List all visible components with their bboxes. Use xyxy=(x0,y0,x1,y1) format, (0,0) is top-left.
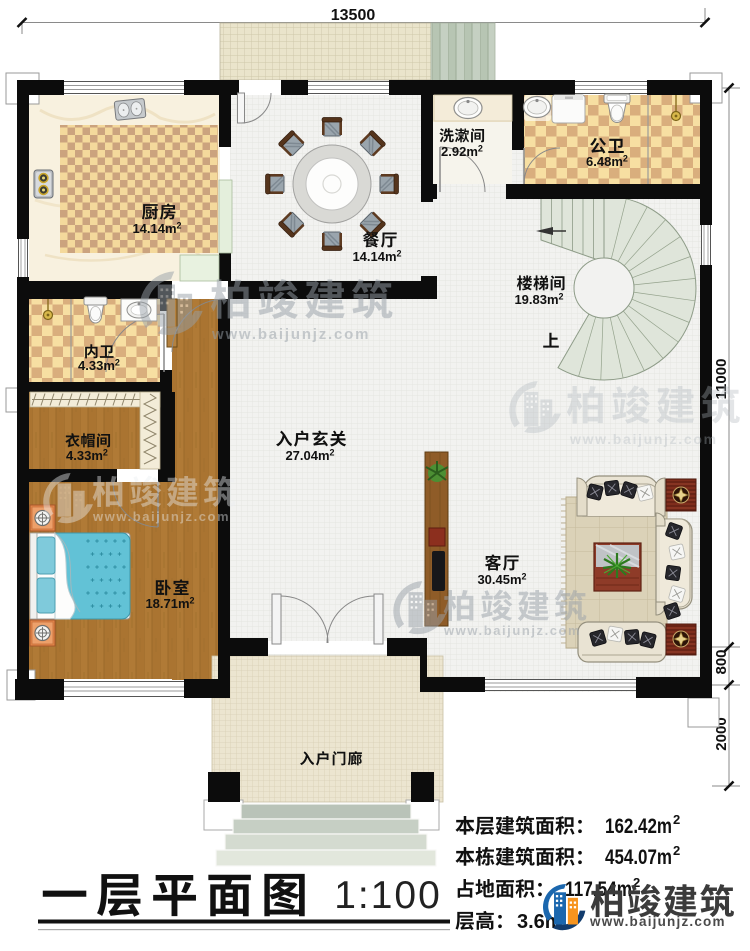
svg-text:14.14m2: 14.14m2 xyxy=(352,249,401,265)
svg-text:13500: 13500 xyxy=(331,7,376,24)
svg-text:4.33m2: 4.33m2 xyxy=(66,448,108,464)
svg-text:4.33m2: 4.33m2 xyxy=(78,358,120,374)
svg-text:800: 800 xyxy=(713,649,730,674)
svg-text:1:100: 1:100 xyxy=(334,874,442,917)
svg-text:2.92m2: 2.92m2 xyxy=(441,144,483,160)
svg-text:www.baijunjz.com: www.baijunjz.com xyxy=(92,509,230,524)
svg-text:www.baijunjz.com: www.baijunjz.com xyxy=(443,623,581,638)
svg-text:19.83m2: 19.83m2 xyxy=(514,292,563,308)
svg-text:454.07m: 454.07m xyxy=(605,846,672,869)
svg-text:www.baijunjz.com: www.baijunjz.com xyxy=(589,914,726,929)
svg-text:2: 2 xyxy=(673,812,680,827)
svg-text:27.04m2: 27.04m2 xyxy=(285,448,334,464)
svg-text:www.baijunjz.com: www.baijunjz.com xyxy=(211,326,370,343)
svg-text:www.baijunjz.com: www.baijunjz.com xyxy=(569,431,718,447)
svg-text:30.45m2: 30.45m2 xyxy=(477,572,526,588)
svg-text:14.14m2: 14.14m2 xyxy=(132,221,181,237)
svg-text:2: 2 xyxy=(673,843,680,858)
svg-text:18.71m2: 18.71m2 xyxy=(145,596,194,612)
svg-text:6.48m2: 6.48m2 xyxy=(586,154,628,170)
svg-text:162.42m: 162.42m xyxy=(605,815,672,838)
